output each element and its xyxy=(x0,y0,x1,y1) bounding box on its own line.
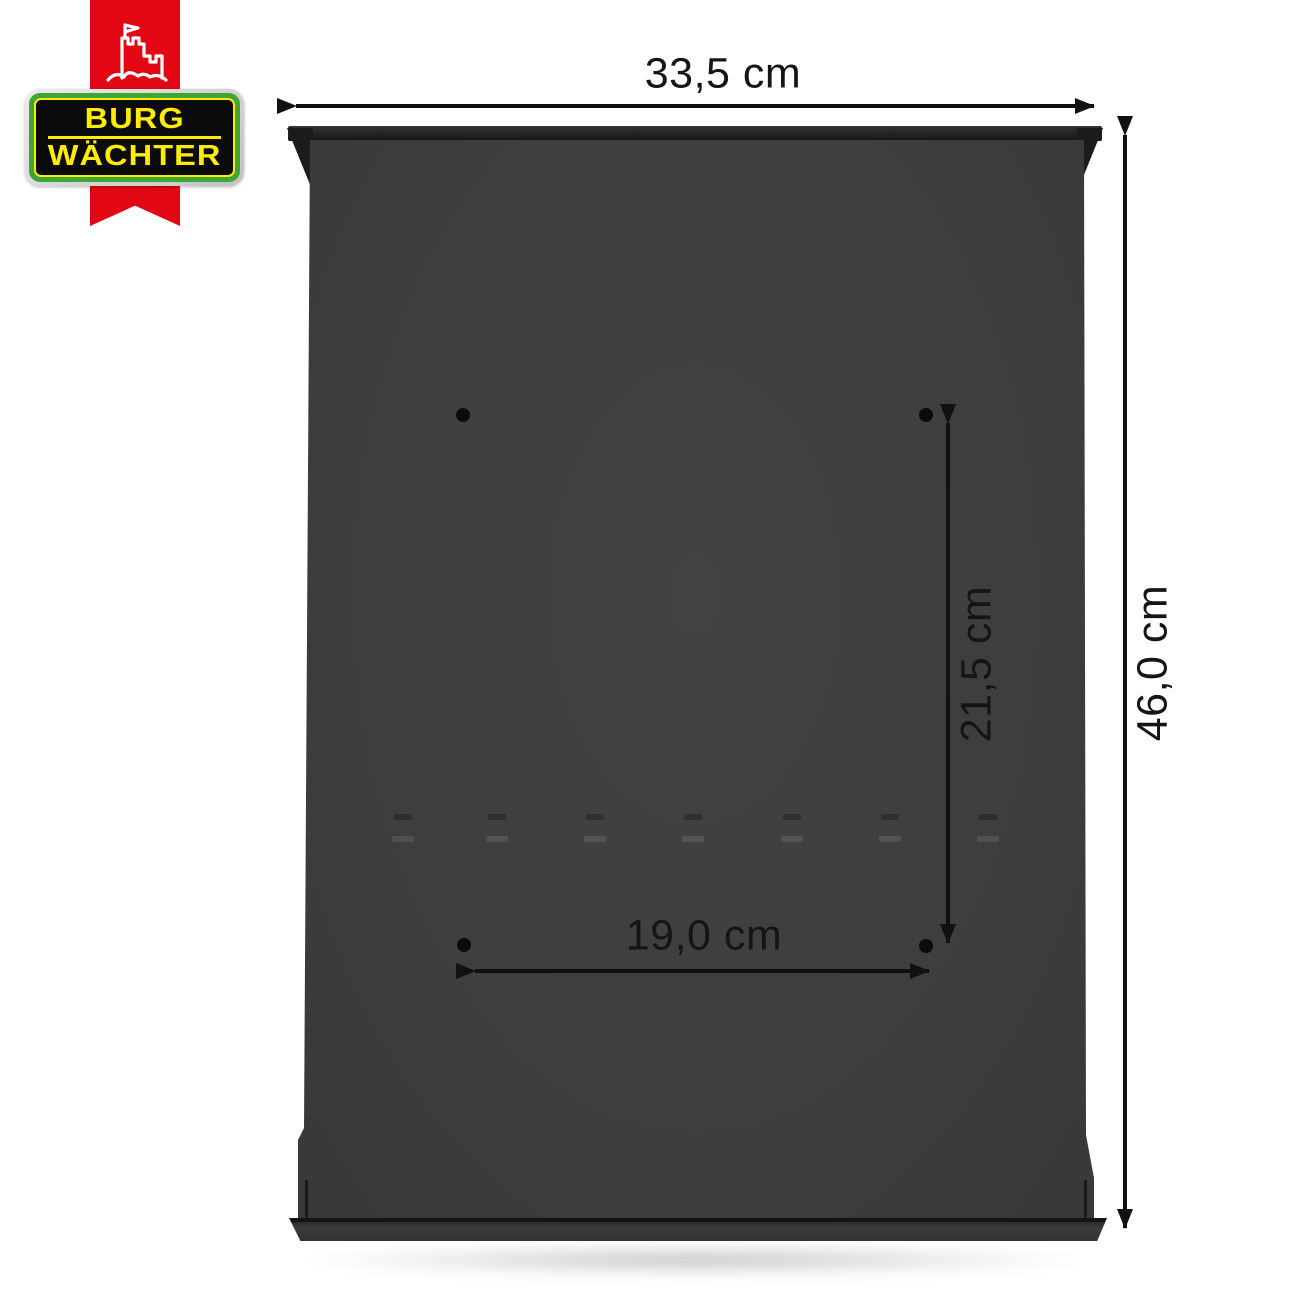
mailbox-top-edge xyxy=(288,126,1102,141)
panel-fold-line-right xyxy=(1084,1180,1087,1222)
emboss-mark xyxy=(879,814,901,844)
height-dimension-label: 46,0 cm xyxy=(1129,585,1178,741)
brand-word-waechter: WÄCHTER xyxy=(48,141,222,171)
emboss-mark xyxy=(682,814,704,844)
hole-horizontal-dimension-label: 19,0 cm xyxy=(626,912,782,961)
badge-green-frame: BURG WÄCHTER xyxy=(29,93,240,182)
product-dimension-image: 33,5 cm 46,0 cm 21,5 cm 19,0 cm BURG WÄC… xyxy=(0,0,1300,1300)
emboss-mark xyxy=(584,814,606,844)
emboss-mark xyxy=(486,814,508,844)
badge-divider xyxy=(48,136,221,139)
panel-fold-line-left xyxy=(305,1180,308,1222)
emboss-mark xyxy=(392,814,414,844)
mailbox-bottom-flange xyxy=(289,1218,1107,1241)
mounting-hole xyxy=(919,408,933,422)
castle-flag-icon xyxy=(98,12,172,94)
badge-black-face: BURG WÄCHTER xyxy=(34,98,235,177)
hole-vertical-dimension-label: 21,5 cm xyxy=(953,586,1002,742)
drop-shadow xyxy=(295,1243,1095,1277)
emboss-mark xyxy=(977,814,999,844)
mounting-hole xyxy=(456,408,470,422)
mounting-hole xyxy=(457,938,471,952)
emboss-mark xyxy=(781,814,803,844)
brand-word-burg: BURG xyxy=(84,104,184,134)
width-dimension-label: 33,5 cm xyxy=(645,50,801,99)
mounting-hole xyxy=(919,939,933,953)
brand-badge: BURG WÄCHTER xyxy=(25,89,244,186)
